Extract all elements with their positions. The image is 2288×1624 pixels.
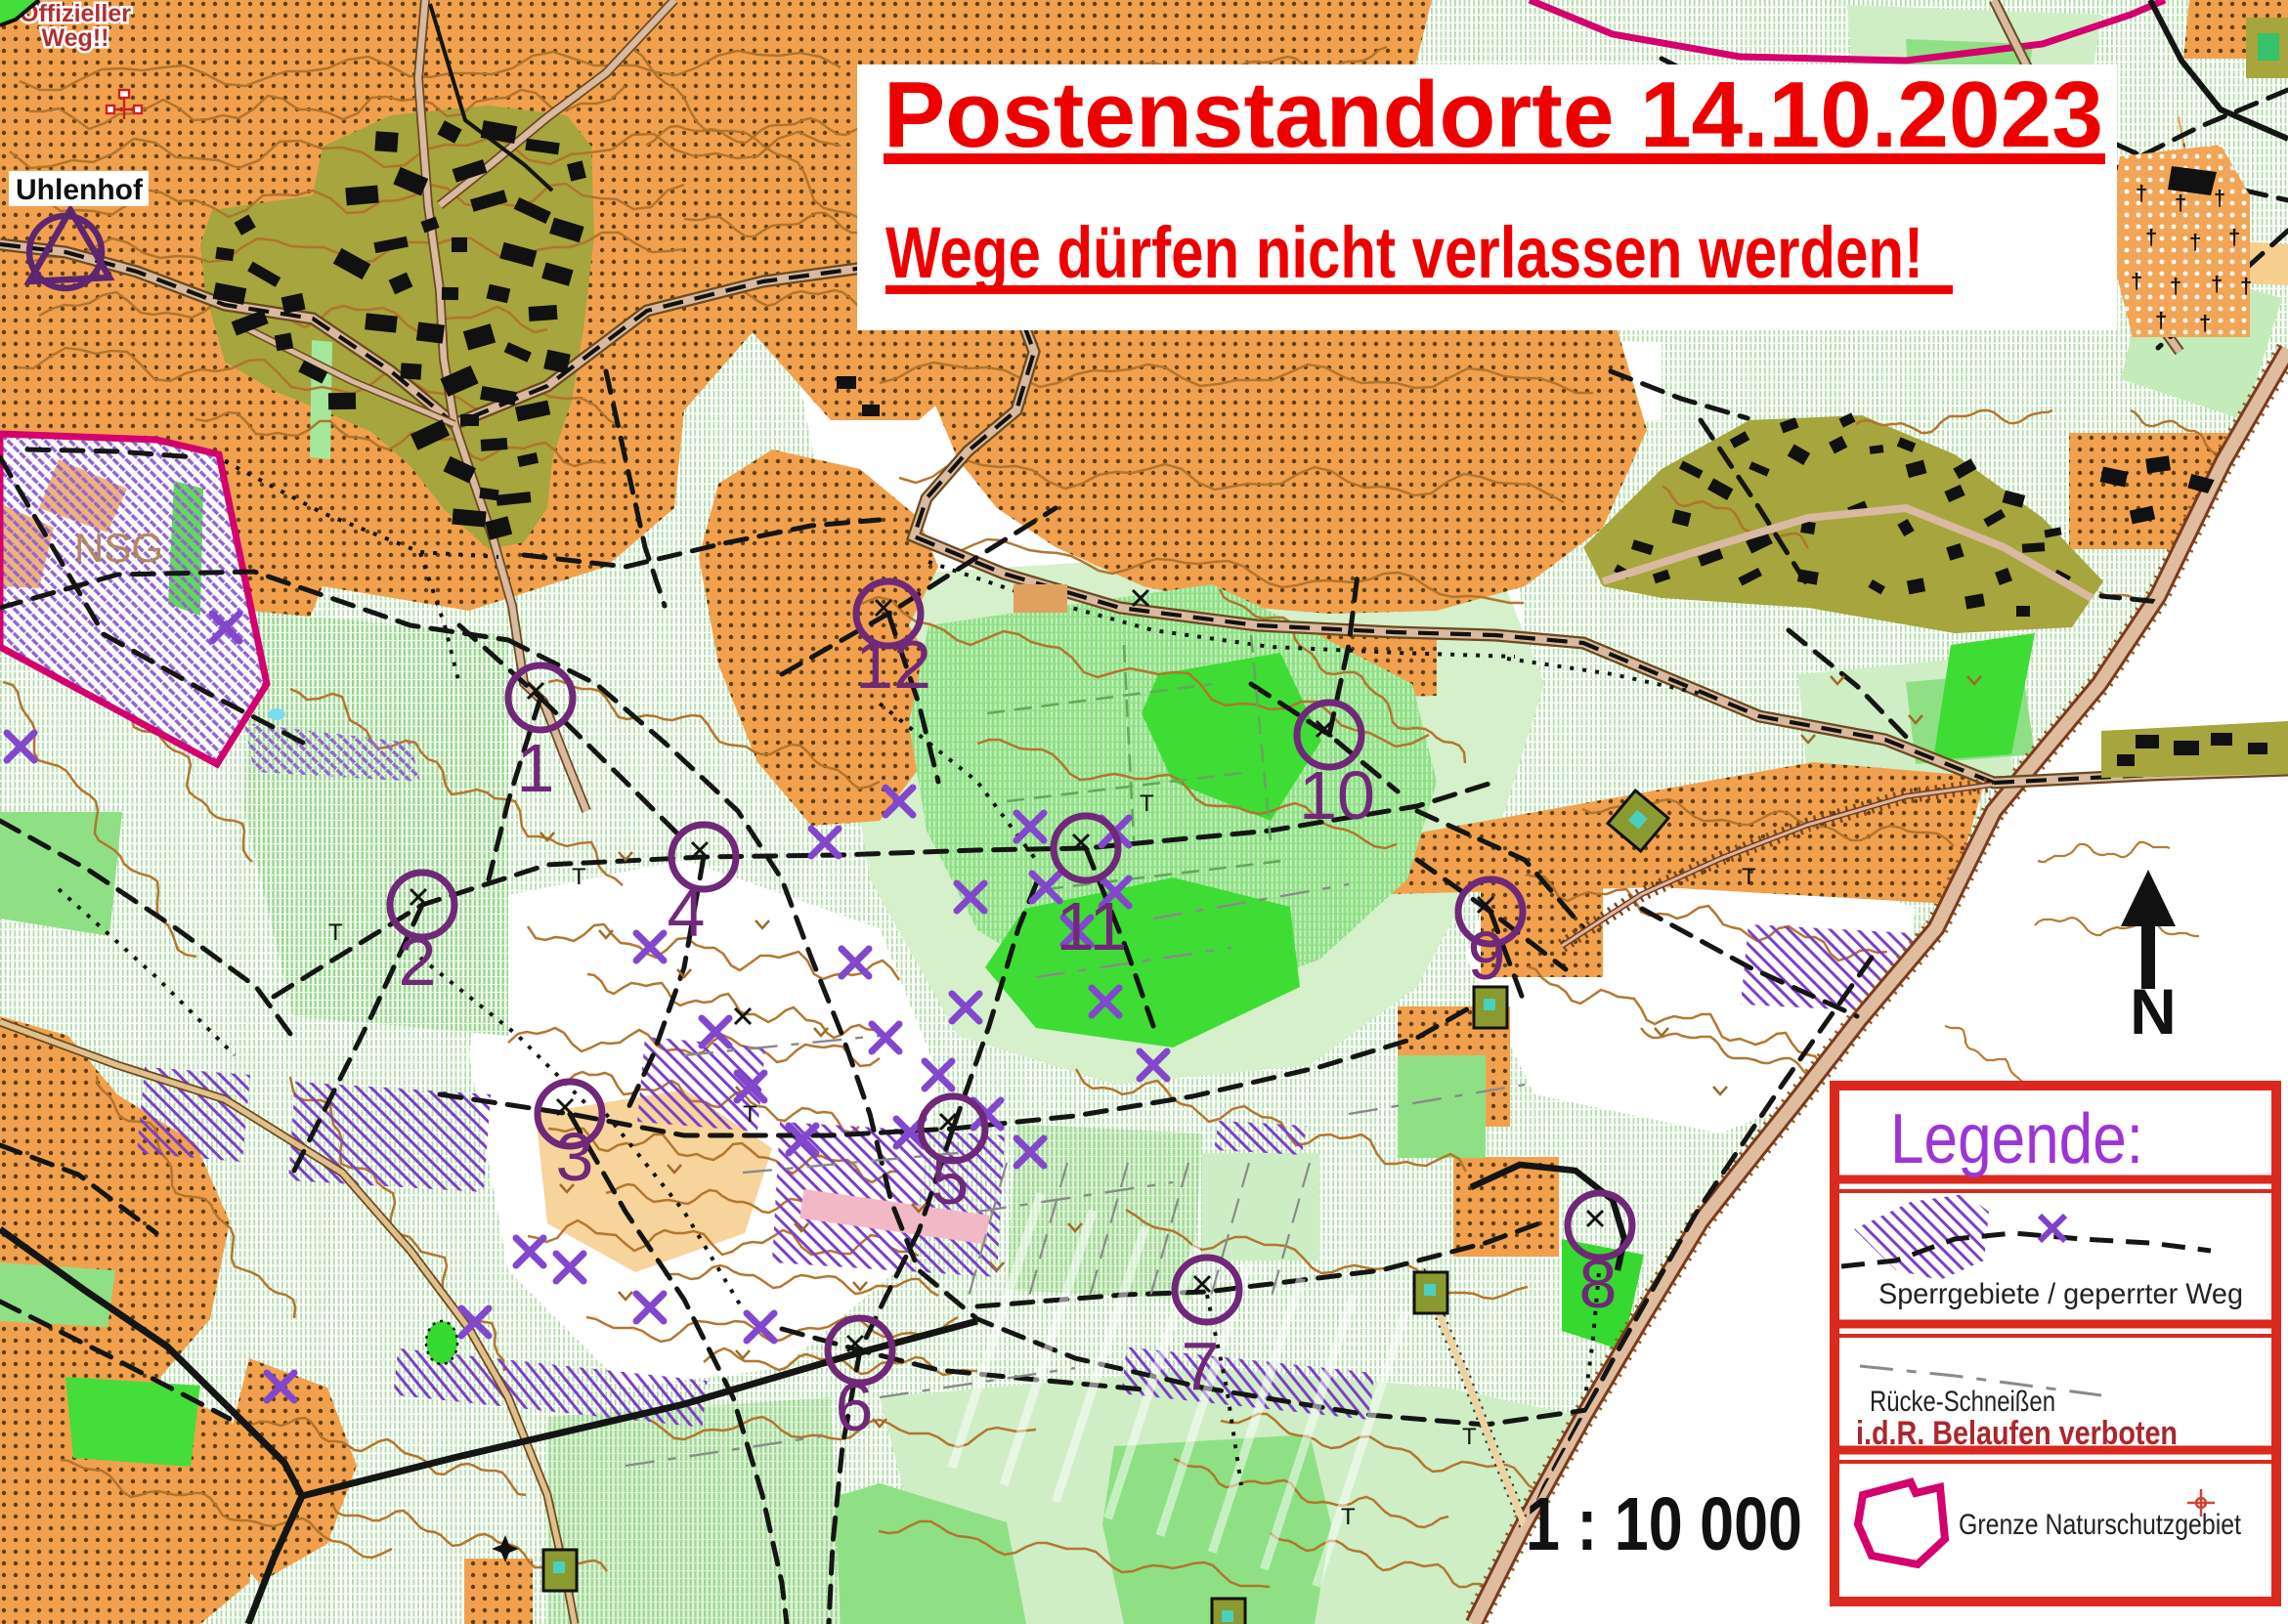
svg-text:T: T [1341,1504,1356,1530]
svg-text:†: † [2214,186,2225,210]
svg-text:Postenstandorte 14.10.2023: Postenstandorte 14.10.2023 [884,63,2103,167]
svg-text:6: 6 [836,1369,874,1445]
svg-text:†: † [2189,230,2201,254]
svg-text:8: 8 [1579,1246,1618,1322]
svg-text:9: 9 [1468,918,1506,994]
svg-text:†: † [2240,274,2252,298]
svg-text:7: 7 [1182,1328,1220,1404]
svg-text:i.d.R. Belaufen verboten: i.d.R. Belaufen verboten [1856,1415,2178,1452]
svg-text:Wege dürfen nicht verlassen we: Wege dürfen nicht verlassen werden! [885,212,1923,293]
svg-text:T: T [328,919,343,946]
svg-text:T: T [743,1101,757,1128]
svg-text:†: † [2228,225,2240,249]
svg-text:Sperrgebiete / geperrter Weg: Sperrgebiete / geperrter Weg [1878,1278,2243,1310]
svg-text:Weg!!: Weg!! [42,24,109,52]
svg-text:†: † [2211,272,2223,296]
svg-text:N: N [2130,975,2177,1047]
svg-text:T: T [572,864,586,890]
svg-text:3: 3 [556,1119,594,1195]
svg-text:NSG: NSG [74,525,163,571]
svg-text:T: T [1140,791,1154,817]
svg-text:12: 12 [855,626,931,703]
svg-text:†: † [2199,311,2211,335]
svg-text:T: T [1462,1424,1477,1450]
svg-text:†: † [2175,191,2186,215]
svg-text:Rücke-Schneißen: Rücke-Schneißen [1870,1386,2055,1418]
svg-text:Legende:: Legende: [1890,1100,2143,1178]
svg-text:†: † [2145,225,2157,249]
svg-text:1 : 10 000: 1 : 10 000 [1526,1482,1802,1566]
svg-text:T: T [1742,864,1756,890]
svg-text:4: 4 [668,875,706,951]
svg-text:1: 1 [517,730,555,806]
svg-text:†: † [2136,181,2147,205]
svg-text:2: 2 [399,923,437,1000]
svg-text:†: † [2131,269,2142,293]
svg-text:11: 11 [1057,888,1128,964]
svg-text:5: 5 [931,1142,970,1218]
svg-text:†: † [2155,308,2167,332]
svg-text:Grenze Naturschutzgebiet: Grenze Naturschutzgebiet [1959,1509,2242,1541]
svg-text:Uhlenhof: Uhlenhof [16,174,144,206]
svg-text:†: † [2170,274,2181,298]
svg-text:10: 10 [1299,757,1375,833]
